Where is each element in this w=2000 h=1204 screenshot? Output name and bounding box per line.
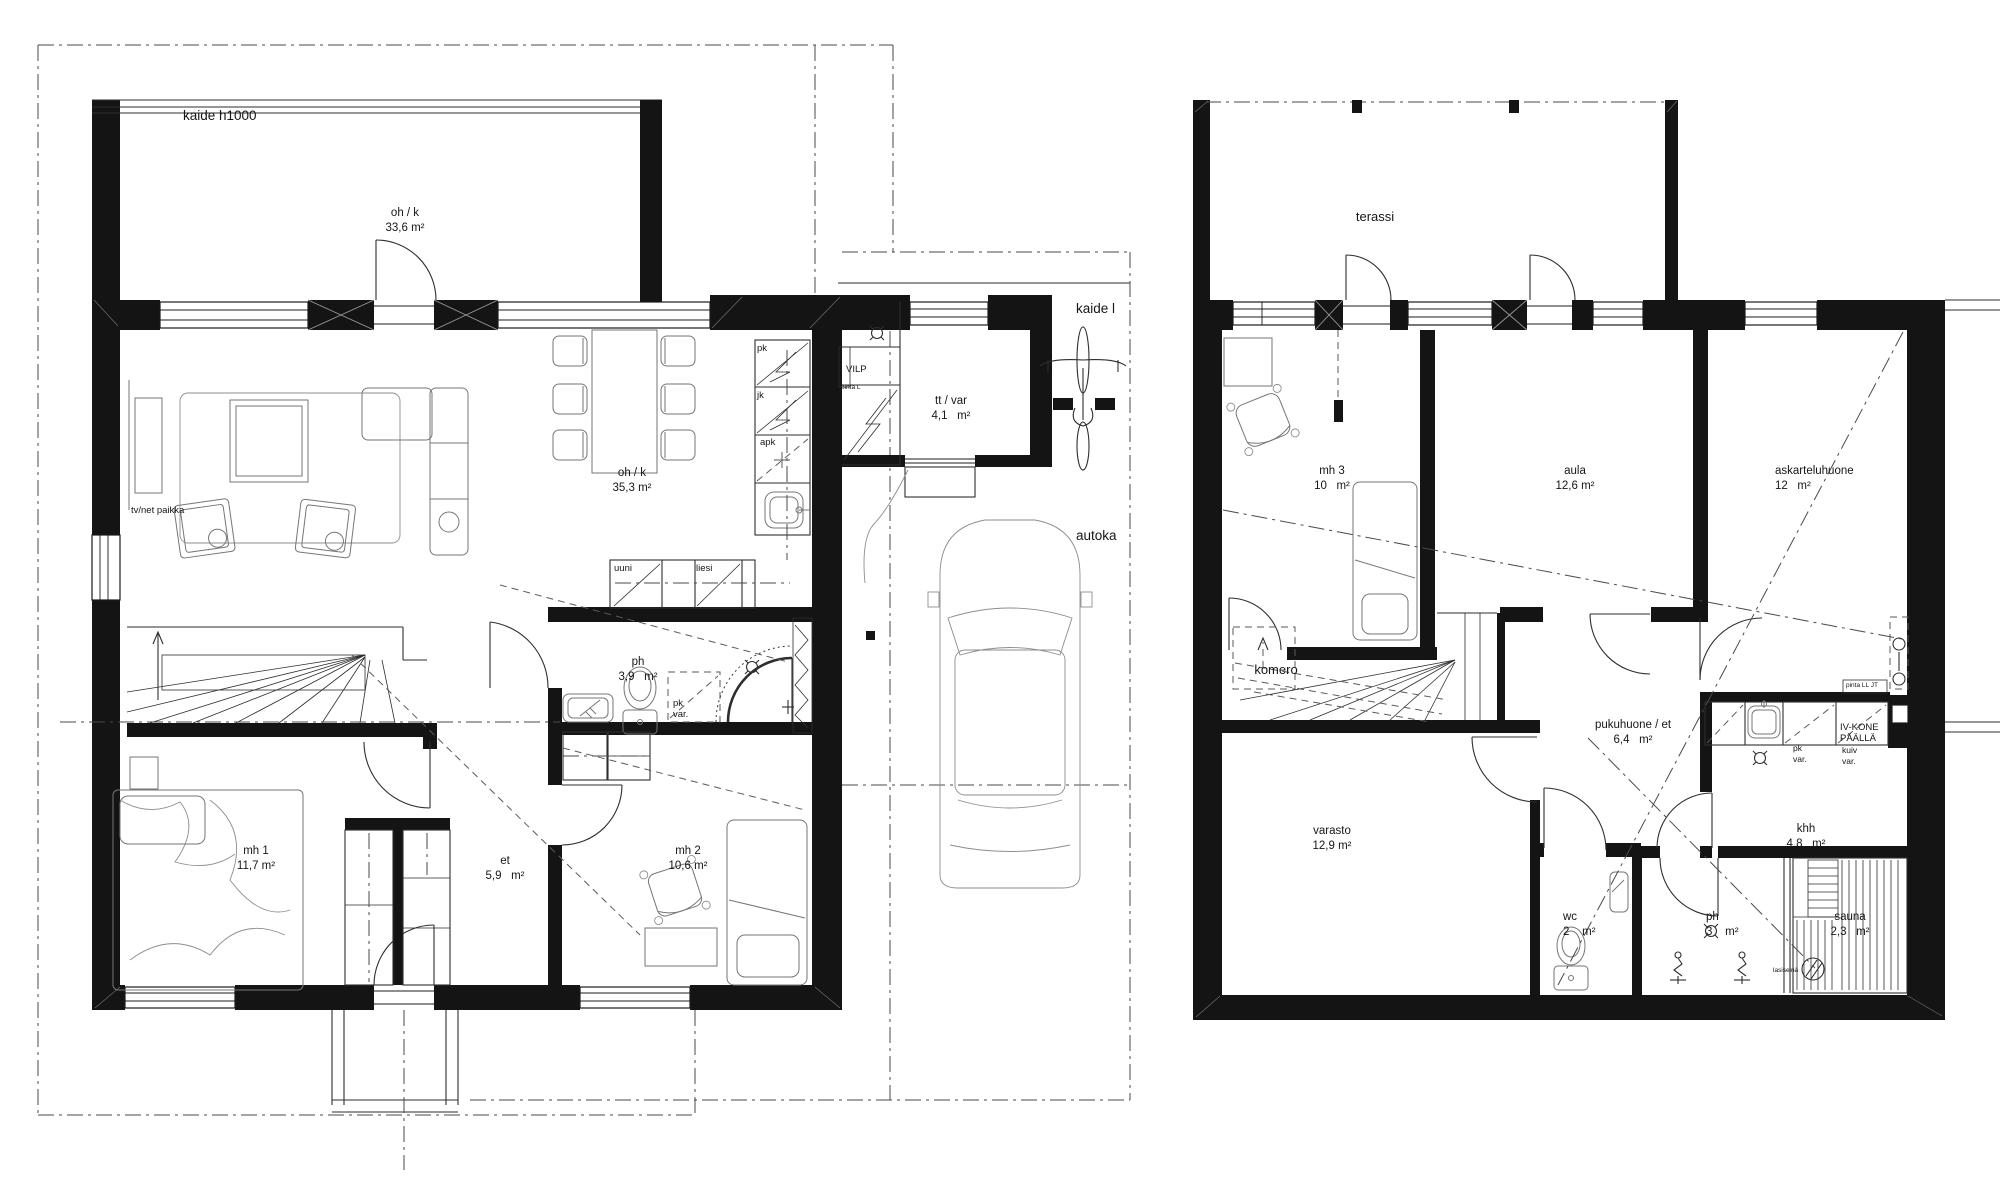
corner-sofa bbox=[362, 388, 468, 555]
room-label-hall: et5,9 m² bbox=[486, 824, 525, 914]
room-label-sauna: sauna2,3 m² bbox=[1831, 880, 1870, 970]
hobby-room-equipment bbox=[1890, 617, 1908, 689]
stairs-floor1 bbox=[127, 627, 427, 723]
room-label-bedroom1: mh 111,7 m² bbox=[237, 814, 275, 904]
water-meter-label: VM bbox=[844, 322, 858, 333]
room-label-aula: aula12,6 m² bbox=[1556, 434, 1595, 524]
room-label-bedroom3: mh 310 m² bbox=[1314, 434, 1350, 524]
dryer-reserve-label: kuivvar. bbox=[1842, 724, 1857, 787]
room-label-shower: ph3 m² bbox=[1706, 880, 1739, 970]
water-meter-symbol: Ø bbox=[844, 308, 851, 319]
bedroom2-closets bbox=[563, 732, 650, 780]
washer-reserve-label1: pkvar. bbox=[673, 676, 688, 742]
carport-label: autoka bbox=[1076, 528, 1117, 543]
freezer-label: pk bbox=[757, 343, 767, 354]
room-label-terrace: terassi bbox=[1356, 179, 1394, 254]
surface-note-label2: pinta LL JT bbox=[1846, 682, 1878, 689]
oven-label: uuni bbox=[614, 563, 632, 574]
floor2-doors bbox=[1229, 255, 1762, 916]
dishwasher-label: apk bbox=[760, 437, 775, 448]
bedroom2-bed bbox=[727, 820, 807, 985]
heat-pump-label: VILP bbox=[846, 364, 867, 375]
surface-note-label1: pinta L bbox=[841, 384, 861, 391]
entrance-porch bbox=[332, 1010, 458, 1170]
room-label-storage: varasto12,9 m² bbox=[1313, 794, 1352, 884]
room-label-living: oh / k35,3 m² bbox=[613, 436, 652, 526]
car bbox=[928, 520, 1092, 888]
shower-symbol bbox=[1670, 952, 1686, 984]
room-label-hobby: askarteluhuone12 m² bbox=[1775, 434, 1854, 524]
armchair-2 bbox=[295, 499, 356, 558]
railing-right-label: kaide l bbox=[1076, 301, 1115, 316]
room-label-dressing: pukuhuone / et6,4 m² bbox=[1595, 688, 1671, 778]
room-label-bedroom2: mh 210,6 m² bbox=[669, 814, 708, 904]
floor-plan-canvas: kaide h1000 oh / k33,6 m² oh / k35,3 m² … bbox=[0, 0, 2000, 1204]
fridge-label: jk bbox=[757, 390, 764, 401]
light-symbol bbox=[1753, 751, 1767, 765]
railing-label: kaide h1000 bbox=[183, 108, 257, 123]
floorplan-drawing bbox=[0, 0, 2000, 1204]
bicycle bbox=[1040, 327, 1126, 470]
closet-label: komero bbox=[1254, 662, 1297, 677]
living-room-furniture bbox=[129, 380, 468, 558]
room-label-tech-storage: tt / var4,1 m² bbox=[932, 364, 971, 454]
washer-reserve-label2: pkvar. bbox=[1793, 722, 1807, 785]
room-label-wc: wc2 m² bbox=[1563, 880, 1596, 970]
room-label-bathroom1: ph3,9 m² bbox=[619, 625, 658, 715]
room-label-balcony: oh / k33,6 m² bbox=[386, 176, 425, 266]
tv-spot-label: tv/net paikka bbox=[131, 505, 184, 516]
site-boundary-lines bbox=[38, 45, 893, 1115]
glass-wall-label: lasiseinä bbox=[1773, 967, 1798, 974]
room-label-utility: khh4,8 m² bbox=[1787, 792, 1826, 882]
stove-label: liesi bbox=[696, 563, 712, 574]
